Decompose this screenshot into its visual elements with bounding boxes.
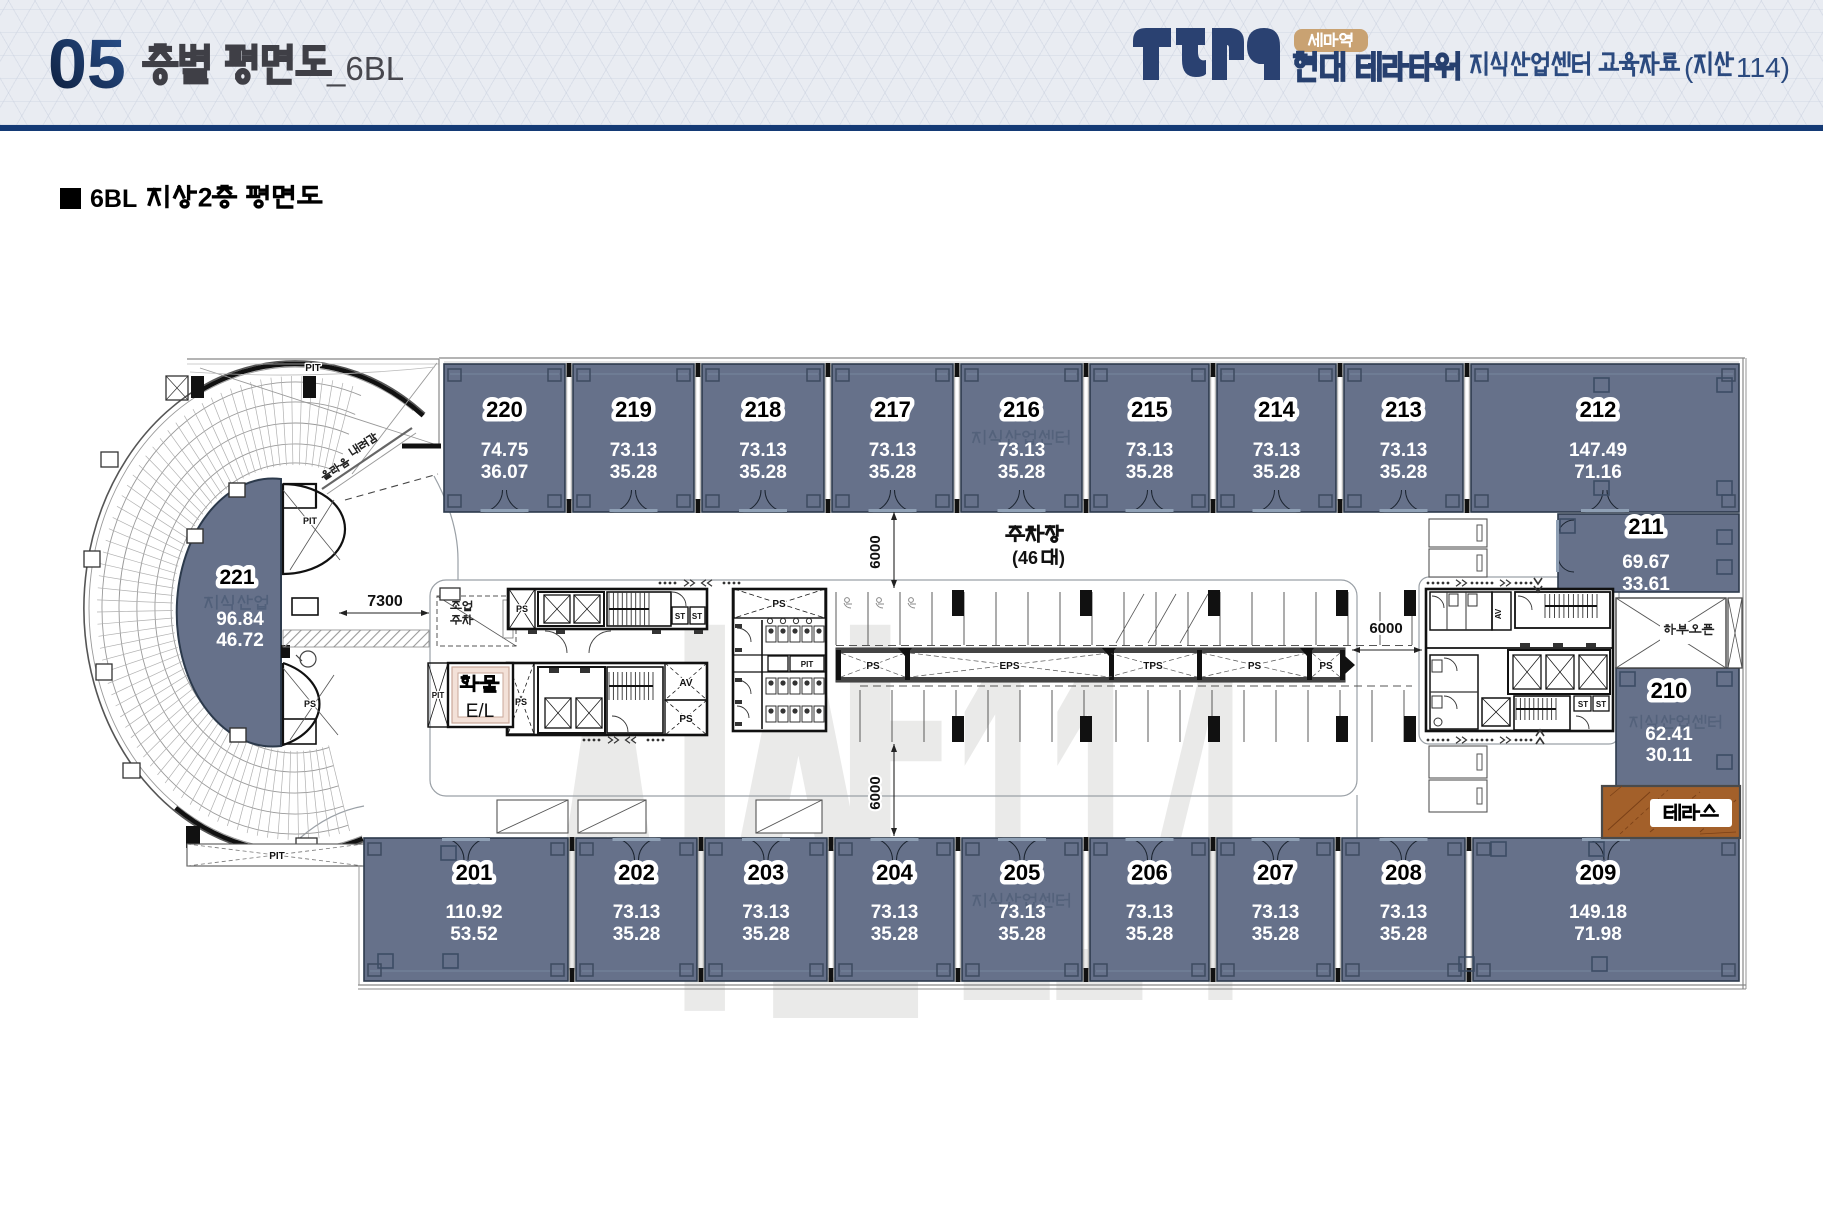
svg-text:6000: 6000: [867, 776, 884, 809]
svg-text:E/L: E/L: [466, 701, 495, 722]
svg-text:209: 209: [1580, 860, 1617, 885]
svg-text:2: 2: [198, 182, 213, 212]
svg-text:74.75: 74.75: [481, 440, 529, 461]
svg-text:73.13: 73.13: [1380, 902, 1428, 923]
svg-text:EPS: EPS: [999, 661, 1019, 672]
svg-text:219: 219: [615, 397, 652, 422]
svg-text:73.13: 73.13: [998, 902, 1046, 923]
svg-text:73.13: 73.13: [1126, 902, 1174, 923]
svg-text:35.28: 35.28: [613, 924, 661, 945]
svg-text:): ): [1059, 548, 1065, 568]
svg-text:73.13: 73.13: [613, 902, 661, 923]
svg-text:6BL: 6BL: [90, 185, 137, 213]
svg-text:205: 205: [1004, 860, 1041, 885]
svg-text:PS: PS: [679, 714, 693, 725]
svg-text:73.13: 73.13: [742, 902, 790, 923]
svg-text:35.28: 35.28: [742, 924, 790, 945]
svg-text:PIT: PIT: [303, 516, 318, 526]
svg-text:71.98: 71.98: [1574, 924, 1622, 945]
svg-text:AV: AV: [1494, 608, 1503, 619]
svg-text:215: 215: [1131, 397, 1168, 422]
svg-text:73.13: 73.13: [998, 440, 1046, 461]
svg-text:216: 216: [1003, 397, 1040, 422]
svg-text:73.13: 73.13: [869, 440, 917, 461]
svg-text:46.72: 46.72: [216, 630, 264, 651]
svg-text:33.61: 33.61: [1622, 574, 1670, 595]
svg-text:35.28: 35.28: [1380, 462, 1428, 483]
svg-text:35.28: 35.28: [871, 924, 919, 945]
svg-text:204: 204: [876, 860, 913, 885]
svg-text:210: 210: [1651, 678, 1688, 703]
svg-text:73.13: 73.13: [1126, 440, 1174, 461]
svg-text:_6BL: _6BL: [326, 50, 404, 87]
svg-text:PIT: PIT: [432, 691, 445, 700]
svg-text:69.67: 69.67: [1622, 552, 1670, 573]
svg-text:PS: PS: [772, 599, 786, 610]
svg-text:PS: PS: [866, 661, 880, 672]
svg-text:TPS: TPS: [1143, 661, 1163, 672]
svg-text:53.52: 53.52: [450, 924, 498, 945]
svg-text:05: 05: [48, 25, 126, 103]
svg-text:73.13: 73.13: [1380, 440, 1428, 461]
svg-text:ST: ST: [675, 612, 685, 621]
svg-text:6000: 6000: [1369, 620, 1402, 637]
svg-text:36.07: 36.07: [481, 462, 529, 483]
svg-text:73.13: 73.13: [610, 440, 658, 461]
svg-text:35.28: 35.28: [610, 462, 658, 483]
svg-text:7300: 7300: [367, 593, 403, 610]
svg-text:110.92: 110.92: [445, 902, 502, 923]
svg-text:35.28: 35.28: [869, 462, 917, 483]
svg-text:212: 212: [1580, 397, 1617, 422]
svg-text:62.41: 62.41: [1645, 724, 1693, 745]
svg-text:203: 203: [748, 860, 785, 885]
svg-text:(: (: [1684, 52, 1694, 83]
svg-text:PS: PS: [1319, 661, 1333, 672]
svg-text:73.13: 73.13: [871, 902, 919, 923]
svg-text:213: 213: [1385, 397, 1422, 422]
svg-text:73.13: 73.13: [1253, 440, 1301, 461]
svg-text:30.11: 30.11: [1646, 745, 1693, 766]
svg-text:221: 221: [219, 566, 254, 589]
svg-text:96.84: 96.84: [216, 609, 264, 630]
svg-text:AV: AV: [679, 678, 692, 689]
svg-text:PIT: PIT: [801, 660, 814, 669]
svg-text:ST: ST: [692, 612, 702, 621]
svg-text:35.28: 35.28: [1380, 924, 1428, 945]
svg-text:PS: PS: [1248, 661, 1262, 672]
svg-text:PS: PS: [304, 699, 316, 709]
svg-text:PIT: PIT: [305, 363, 321, 374]
svg-text:73.13: 73.13: [1252, 902, 1300, 923]
svg-text:35.28: 35.28: [1126, 924, 1174, 945]
svg-text:71.16: 71.16: [1574, 462, 1622, 483]
svg-text:202: 202: [618, 860, 655, 885]
svg-text:207: 207: [1257, 860, 1294, 885]
svg-text:35.28: 35.28: [1126, 462, 1174, 483]
svg-text:35.28: 35.28: [998, 462, 1046, 483]
svg-text:206: 206: [1131, 860, 1168, 885]
svg-text:218: 218: [745, 397, 782, 422]
svg-text:220: 220: [486, 397, 523, 422]
svg-text:214: 214: [1258, 397, 1295, 422]
svg-text:35.28: 35.28: [1252, 924, 1300, 945]
svg-text:217: 217: [874, 397, 911, 422]
svg-text:114): 114): [1736, 52, 1790, 83]
svg-text:PS: PS: [515, 697, 527, 707]
svg-text:ST: ST: [1596, 700, 1606, 709]
svg-text:73.13: 73.13: [739, 440, 787, 461]
svg-text:6000: 6000: [867, 535, 884, 568]
svg-text:114: 114: [952, 548, 1252, 1106]
svg-text:201: 201: [456, 860, 493, 885]
svg-text:(46: (46: [1012, 548, 1038, 568]
svg-text:35.28: 35.28: [739, 462, 787, 483]
svg-text:ST: ST: [1578, 700, 1588, 709]
svg-text:211: 211: [1628, 514, 1664, 539]
svg-text:149.18: 149.18: [1569, 902, 1627, 923]
svg-text:PIT: PIT: [269, 851, 285, 862]
svg-text:208: 208: [1385, 860, 1422, 885]
svg-text:35.28: 35.28: [998, 924, 1046, 945]
svg-text:147.49: 147.49: [1569, 440, 1627, 461]
svg-text:PS: PS: [516, 604, 528, 614]
svg-text:35.28: 35.28: [1253, 462, 1301, 483]
